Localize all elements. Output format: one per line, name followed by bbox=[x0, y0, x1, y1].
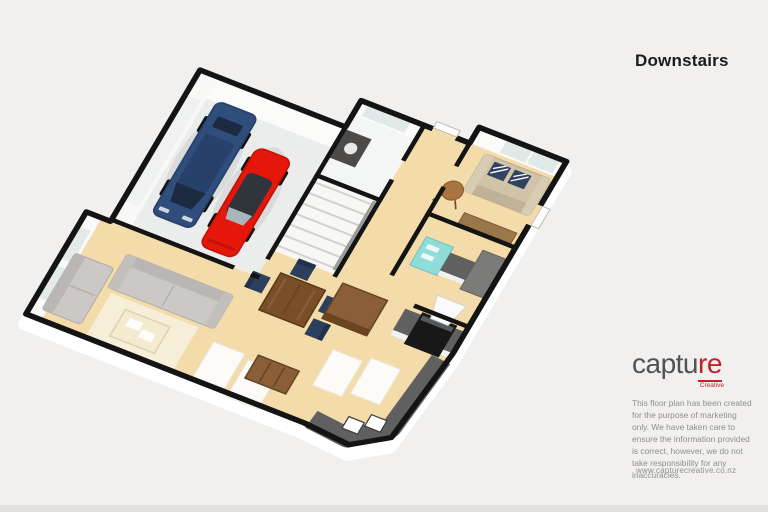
website-url: www.capturecreative.co.nz bbox=[636, 466, 736, 475]
floor-plan-page: Downstairs capture Creative This floor p… bbox=[0, 0, 768, 512]
logo-text-accent: re bbox=[698, 348, 722, 382]
logo-text-main: captu bbox=[632, 348, 698, 379]
page-title: Downstairs bbox=[635, 51, 729, 71]
logo-subtext: Creative bbox=[632, 382, 724, 389]
bottom-edge-strip bbox=[0, 505, 768, 512]
capture-logo: capture bbox=[632, 350, 722, 378]
